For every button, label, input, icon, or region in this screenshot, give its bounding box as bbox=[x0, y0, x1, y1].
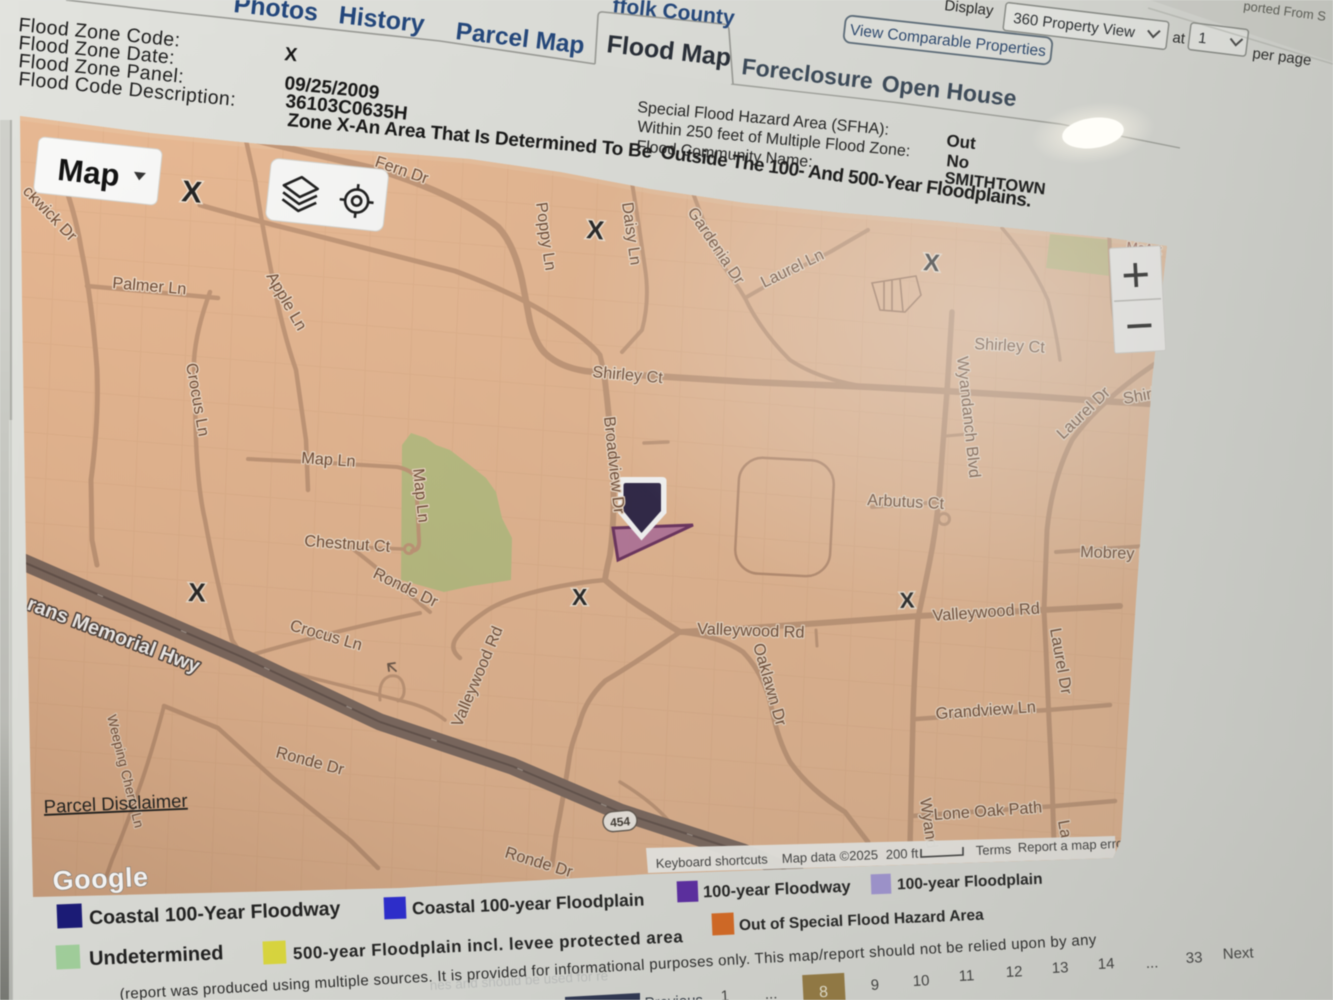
svg-text:9: 9 bbox=[870, 977, 879, 994]
svg-text:8: 8 bbox=[819, 984, 829, 1000]
svg-text:10: 10 bbox=[912, 972, 930, 990]
svg-text:Map: Map bbox=[56, 152, 121, 193]
svg-text:...: ... bbox=[764, 985, 777, 1000]
svg-text:1: 1 bbox=[720, 988, 729, 1000]
svg-text:14: 14 bbox=[1097, 955, 1115, 973]
svg-text:11: 11 bbox=[958, 967, 974, 985]
svg-text:Next: Next bbox=[1222, 944, 1255, 963]
svg-text:Out: Out bbox=[946, 131, 977, 153]
svg-text:200 ft: 200 ft bbox=[886, 846, 919, 862]
svg-text:13: 13 bbox=[1051, 959, 1069, 977]
svg-text:33: 33 bbox=[1185, 949, 1203, 967]
svg-text:12: 12 bbox=[1005, 963, 1023, 981]
svg-text:X: X bbox=[283, 44, 298, 66]
svg-text:...: ... bbox=[1145, 954, 1158, 972]
svg-text:Terms: Terms bbox=[976, 842, 1012, 858]
svg-text:Google: Google bbox=[52, 862, 149, 896]
